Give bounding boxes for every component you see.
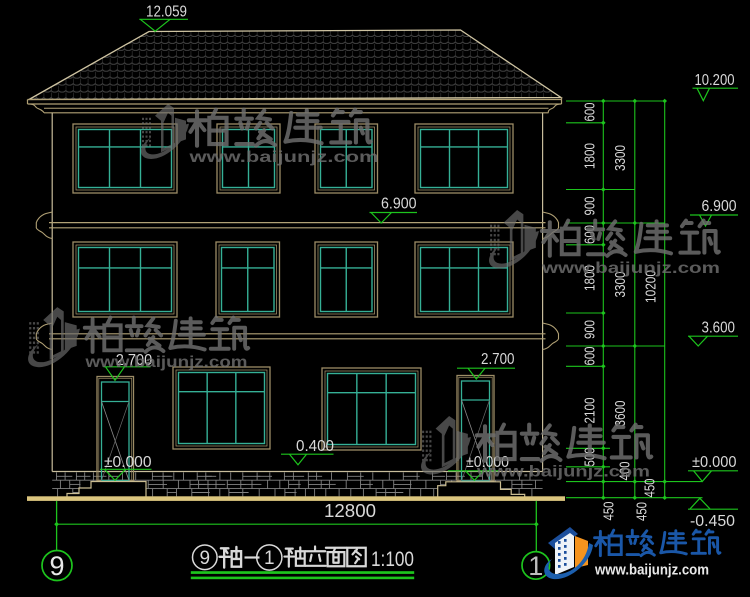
svg-text:www.baijunjz.com: www.baijunjz.com — [541, 260, 720, 277]
svg-text:3600: 3600 — [612, 401, 629, 427]
svg-text:12800: 12800 — [324, 501, 376, 521]
svg-text:450: 450 — [642, 479, 659, 498]
svg-text:0.400: 0.400 — [296, 438, 334, 455]
svg-text:1: 1 — [264, 548, 275, 569]
svg-text:www.baijunjz.com: www.baijunjz.com — [594, 563, 709, 579]
svg-text:600: 600 — [582, 347, 599, 366]
svg-text:2100: 2100 — [582, 398, 599, 424]
svg-text:12.059: 12.059 — [146, 3, 187, 20]
svg-text:1:100: 1:100 — [371, 548, 414, 571]
svg-text:1: 1 — [528, 551, 543, 581]
svg-text:2.700: 2.700 — [481, 351, 515, 368]
svg-text:3300: 3300 — [612, 145, 629, 171]
svg-text:1800: 1800 — [582, 143, 599, 169]
svg-text:www.baijunjz.com: www.baijunjz.com — [188, 149, 378, 166]
svg-text:900: 900 — [582, 197, 599, 216]
svg-text:10.200: 10.200 — [695, 72, 735, 89]
svg-text:450: 450 — [601, 502, 618, 521]
svg-text:450: 450 — [634, 502, 651, 521]
svg-text:www.baijunjz.com: www.baijunjz.com — [476, 464, 650, 481]
svg-text:900: 900 — [582, 320, 599, 339]
svg-text:±0.000: ±0.000 — [104, 454, 152, 471]
svg-text:9: 9 — [49, 551, 64, 581]
svg-text:600: 600 — [582, 103, 599, 122]
svg-text:6.900: 6.900 — [381, 195, 417, 212]
svg-text:±0.000: ±0.000 — [692, 454, 737, 471]
svg-text:6.900: 6.900 — [702, 198, 737, 215]
svg-text:www.baijunjz.com: www.baijunjz.com — [84, 354, 247, 371]
svg-text:-0.450: -0.450 — [690, 513, 735, 530]
svg-text:9: 9 — [200, 548, 211, 569]
svg-text:3.600: 3.600 — [702, 320, 736, 337]
